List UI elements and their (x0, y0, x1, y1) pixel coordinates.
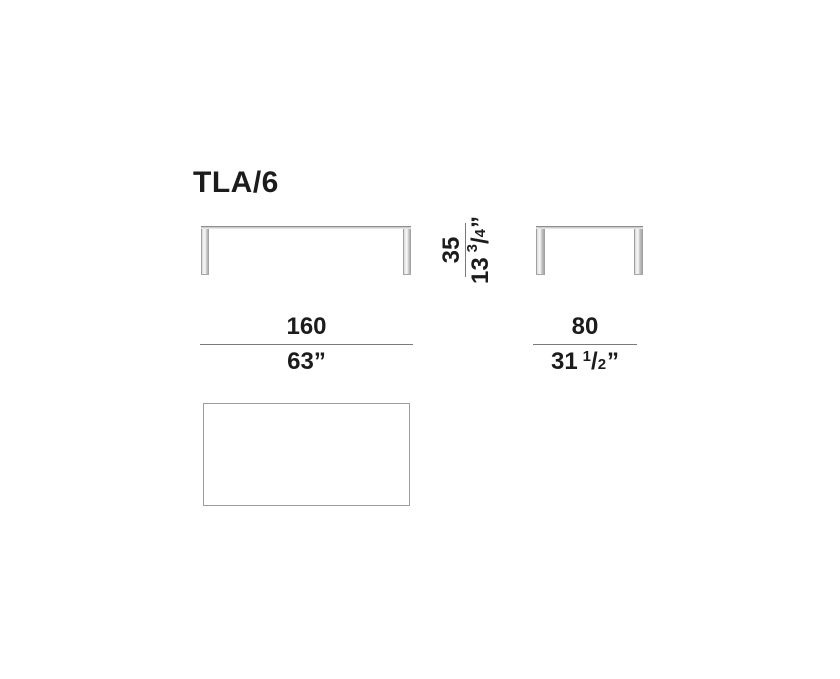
depth-inch-fraction-numerator: 1 (583, 348, 591, 365)
depth-dimension-inches: 311/2” (533, 349, 637, 378)
depth-inch-whole: 31 (551, 348, 578, 375)
depth-dimension-line (533, 344, 637, 345)
front-tabletop (201, 226, 411, 229)
depth-dimension-cm: 80 (533, 314, 637, 340)
height-dimension-inches: 133/4” (433, 202, 529, 298)
side-leg-right (634, 229, 643, 275)
depth-inch-mark: ” (607, 348, 619, 375)
width-dimension-cm: 160 (200, 314, 413, 340)
plan-top-view (203, 403, 410, 506)
height-inch-fraction-numerator: 3 (460, 244, 486, 252)
model-title: TLA/6 (193, 166, 279, 200)
front-leg-left (201, 229, 209, 275)
depth-inch-fraction-denominator: 2 (598, 356, 606, 373)
depth-inch-fraction-slash: / (591, 348, 598, 375)
spec-sheet: TLA/6 35 133/4” 160 63” 80 311/2” (0, 0, 840, 679)
height-inch-mark: ” (468, 216, 494, 228)
height-inch-whole: 13 (468, 257, 494, 284)
width-dimension-inches: 63” (200, 349, 413, 375)
width-dimension-line (200, 344, 413, 345)
height-inch-fraction-denominator: 4 (468, 229, 494, 237)
side-leg-left (536, 229, 545, 275)
side-tabletop (536, 226, 643, 229)
height-inch-fraction-slash: / (468, 237, 494, 244)
